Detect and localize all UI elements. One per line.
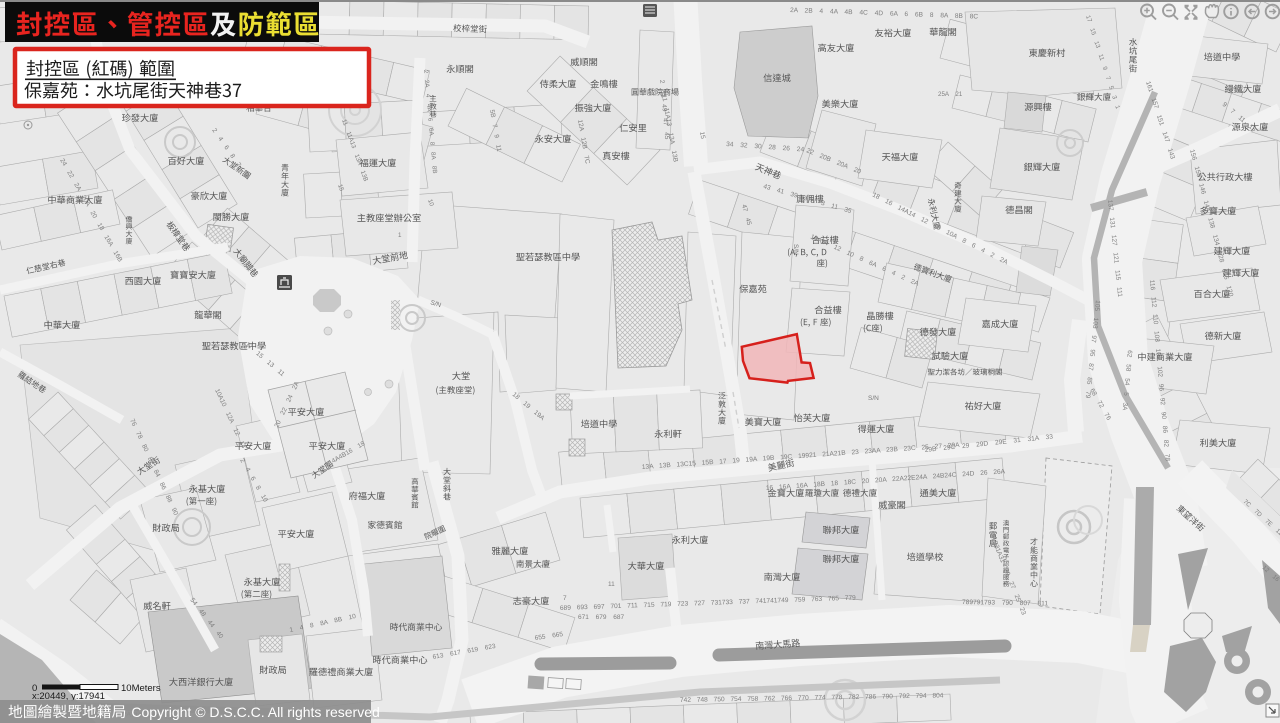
- svg-text:1: 1: [398, 232, 402, 239]
- svg-text:7: 7: [563, 595, 567, 602]
- svg-text:S/N: S/N: [868, 395, 879, 402]
- svg-text:11: 11: [608, 581, 615, 588]
- svg-text:Copyright © D.S.C.C. All right: Copyright © D.S.C.C. All rights reserved: [131, 704, 379, 720]
- svg-text:S/N: S/N: [792, 244, 799, 255]
- svg-text:671 679 687: 671 679 687: [578, 614, 625, 621]
- svg-text:25A 21: 25A 21: [938, 91, 963, 98]
- svg-text:10Meters: 10Meters: [121, 683, 161, 694]
